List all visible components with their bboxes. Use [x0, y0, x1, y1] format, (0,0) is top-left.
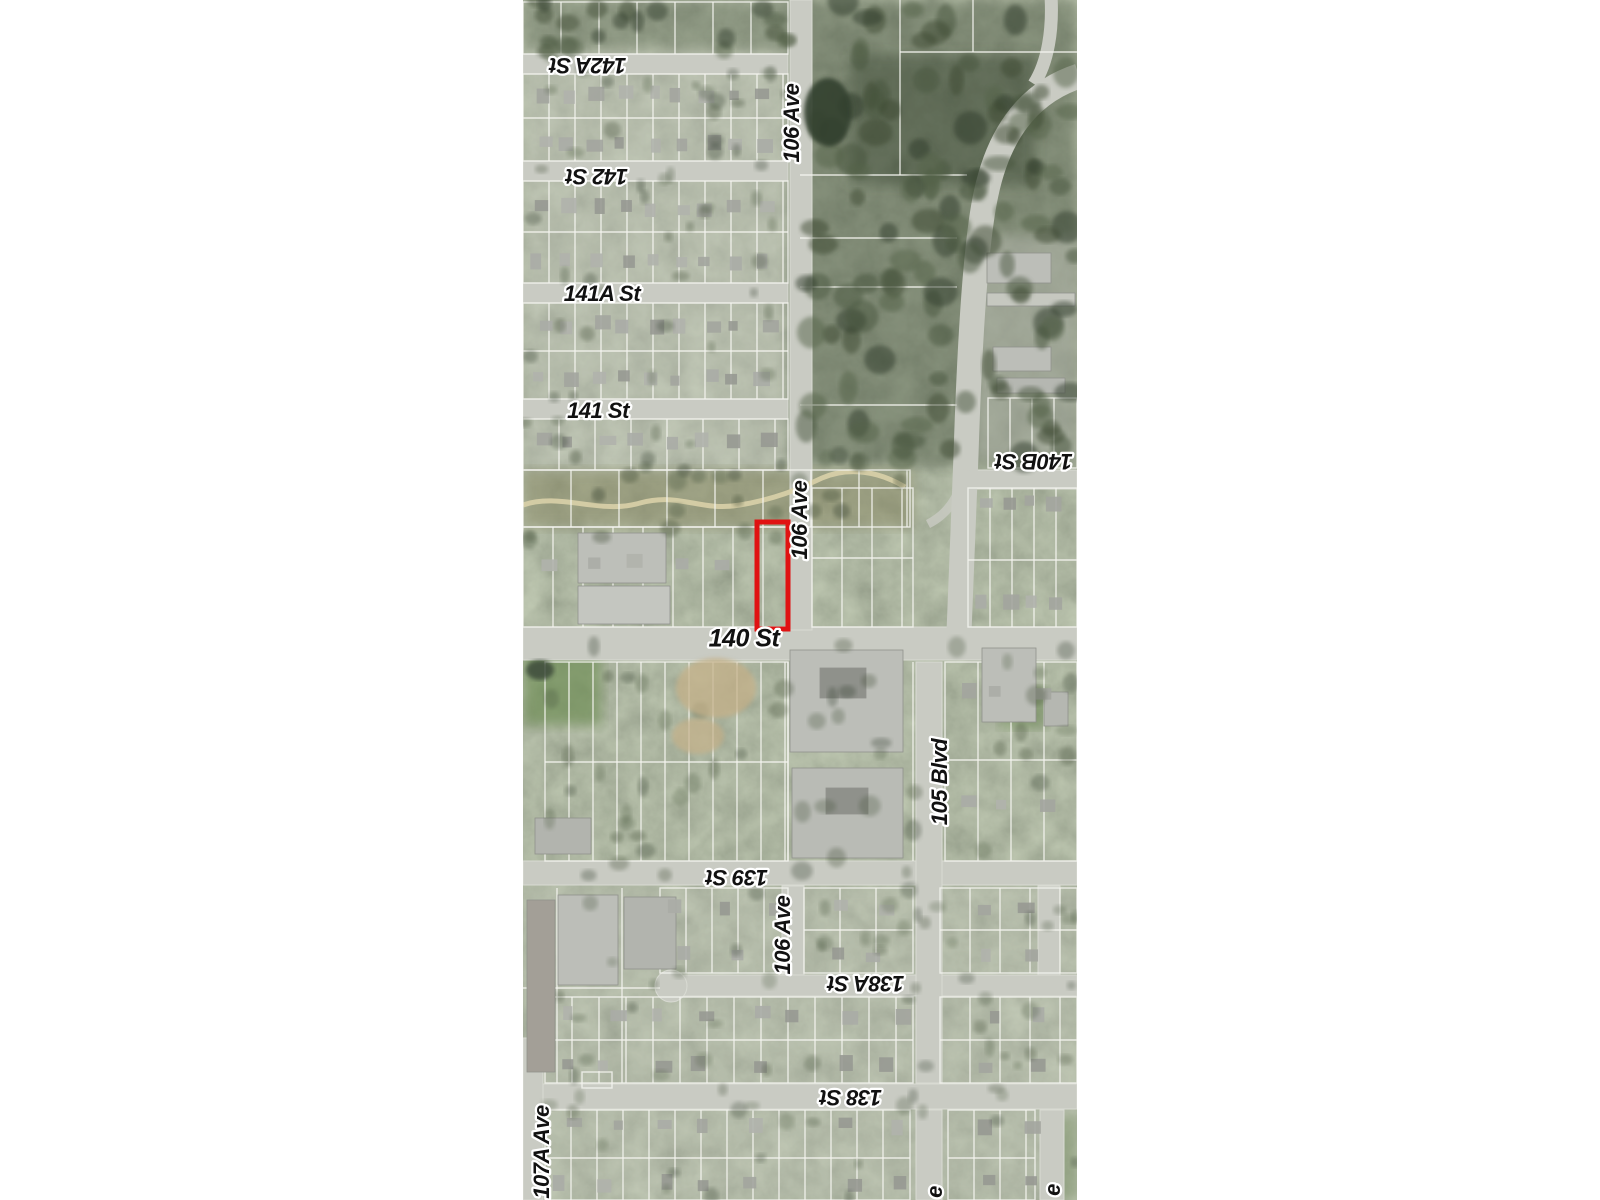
- street-label-0: 142A St: [548, 53, 627, 78]
- street-label-12: 138 St: [818, 1085, 882, 1110]
- street-label-2: 142 St: [564, 164, 628, 189]
- street-label-7: 140 St: [709, 625, 782, 653]
- street-label-9: 139 St: [704, 865, 768, 890]
- street-label-15: e: [1040, 1184, 1065, 1196]
- street-label-14: e: [922, 1186, 947, 1198]
- street-label-3: 141A St: [564, 281, 643, 306]
- street-label-13: 107A Ave: [529, 1105, 554, 1199]
- street-label-10: 106 Ave: [770, 895, 795, 974]
- street-label-4: 141 St: [567, 398, 631, 423]
- street-label-5: 140B St: [993, 449, 1072, 474]
- street-label-8: 105 Blvd: [927, 738, 952, 826]
- street-label-6: 106 Ave: [787, 480, 812, 559]
- aerial-map-image: 142A St106 Ave142 St141A St141 St140B St…: [0, 0, 1600, 1200]
- street-label-11: 138A St: [826, 971, 905, 996]
- street-label-1: 106 Ave: [779, 83, 804, 162]
- map-canvas: 142A St106 Ave142 St141A St141 St140B St…: [0, 0, 1600, 1200]
